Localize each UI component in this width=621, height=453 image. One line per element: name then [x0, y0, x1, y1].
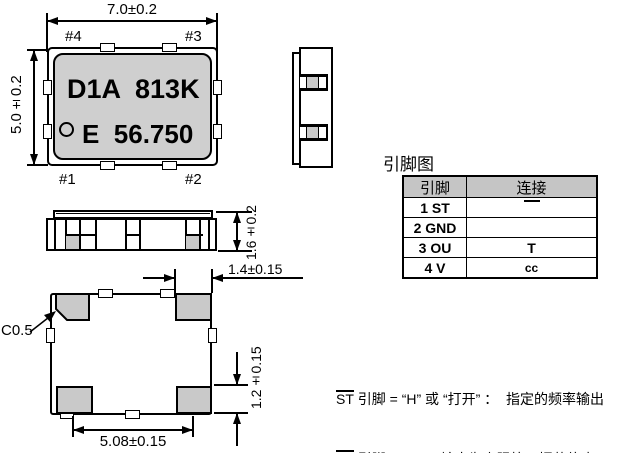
table-row: 3 OU T [404, 237, 596, 257]
arrowhead-left-icon [212, 274, 223, 282]
connection-cell [467, 218, 596, 237]
arrowhead-left-icon [47, 17, 58, 25]
dimension-line [33, 50, 35, 165]
castellation-notch [125, 410, 140, 419]
table-row: 1 ST [404, 197, 596, 217]
side-view-pad-band [299, 74, 328, 91]
front-view-lid-seam-line [56, 213, 210, 214]
castellation-notch [43, 124, 52, 139]
connection-column-header: 连接 [467, 177, 596, 197]
pin1-label: #1 [59, 171, 76, 188]
package-drawing: 7.0±0.2 5.0±0.2 #4 #3 #1 #2 D1A 813K E 5… [0, 0, 621, 453]
pin-cell: 4 V [404, 258, 467, 277]
dimension-extension-line [214, 412, 248, 414]
side-view-pad [306, 77, 319, 88]
dimension-line [47, 20, 217, 22]
castellation-notch [160, 289, 175, 298]
castellation-notch [213, 124, 222, 139]
pin-column-header: 引脚 [404, 177, 467, 197]
pin-table-title: 引脚图 [383, 150, 434, 175]
pin2-label: #2 [185, 171, 202, 188]
front-view-terminal-line [125, 234, 141, 236]
castellation-notch [162, 43, 177, 52]
castellation-notch [100, 161, 115, 170]
pin4-label: #4 [65, 28, 82, 45]
arrowhead-down-icon [233, 374, 241, 385]
pad-pitch-dimension: 5.08±0.15 [73, 433, 193, 450]
st-pin-label: ST [336, 390, 354, 407]
arrowhead-down-icon [233, 240, 241, 251]
castellation-notch [98, 289, 113, 298]
arrowhead-up-icon [233, 212, 241, 223]
connection-cell [467, 198, 596, 217]
dimension-extension-line [214, 384, 248, 386]
arrowhead-up-icon [233, 413, 241, 424]
front-view-pad [186, 236, 199, 249]
side-view-pad [306, 127, 319, 138]
table-row: 2 GND [404, 217, 596, 237]
connection-cell: cc [467, 258, 596, 277]
bottom-pad-chamfered [55, 293, 91, 322]
function-notes: ST 引脚 = “H” 或 “打开” ： 指定的频率输出 ST 引脚 = “L”… [336, 349, 609, 453]
side-view-body [299, 47, 333, 168]
dimension-line [73, 429, 193, 431]
note-line-2: ST 引脚 = “L”： 输出为高阻抗，振荡停止。 [336, 449, 609, 453]
marking-text-line2: E 56.750 [82, 119, 193, 150]
top-view-height-dimension: 5.0±0.2 [8, 75, 25, 135]
connection-cell: T [467, 238, 596, 257]
front-view-pad [66, 236, 79, 249]
front-view-inner-line [208, 220, 210, 249]
overline-mark [524, 200, 540, 202]
arrowhead-right-icon [164, 274, 175, 282]
castellation-notch [162, 161, 177, 170]
bottom-pad [176, 386, 212, 414]
pin1-indicator-circle-icon [59, 122, 74, 137]
castellation-notch [208, 328, 217, 343]
top-view-width-dimension: 7.0±0.2 [47, 1, 217, 18]
front-view-inner-line [54, 220, 56, 249]
side-view-pad-band [299, 124, 328, 141]
pin-table: 引脚 连接 1 ST 2 GND 3 OU T 4 V cc [402, 175, 598, 279]
note-line-1-text: 引脚 = “H” 或 “打开” ： 指定的频率输出 [354, 391, 604, 407]
dimension-line [212, 277, 303, 279]
note-line-1: ST 引脚 = “H” 或 “打开” ： 指定的频率输出 [336, 389, 609, 409]
bottom-pad [56, 386, 93, 414]
arrowhead-up-icon [30, 50, 38, 61]
table-row: 4 V cc [404, 257, 596, 277]
castellation-notch [100, 43, 115, 52]
chamfer-leader-arrow-icon [27, 306, 59, 336]
pin-table-header-row: 引脚 连接 [404, 177, 596, 197]
arrowhead-right-icon [206, 17, 217, 25]
pin3-label: #3 [185, 28, 202, 45]
pin-cell: 2 GND [404, 218, 467, 237]
pin-cell: 3 OU [404, 238, 467, 257]
bottom-pad [175, 293, 212, 321]
front-view-height-dimension: 1.6±0.2 [243, 205, 259, 260]
pad-width-dimension: 1.4±0.15 [228, 261, 282, 277]
castellation-notch [43, 80, 52, 95]
arrowhead-down-icon [30, 154, 38, 165]
pad-height-dimension: 1.2±0.15 [248, 340, 264, 416]
pin-cell: 1 ST [404, 198, 467, 217]
marking-text-line1: D1A 813K [67, 74, 200, 105]
castellation-notch [213, 80, 222, 95]
